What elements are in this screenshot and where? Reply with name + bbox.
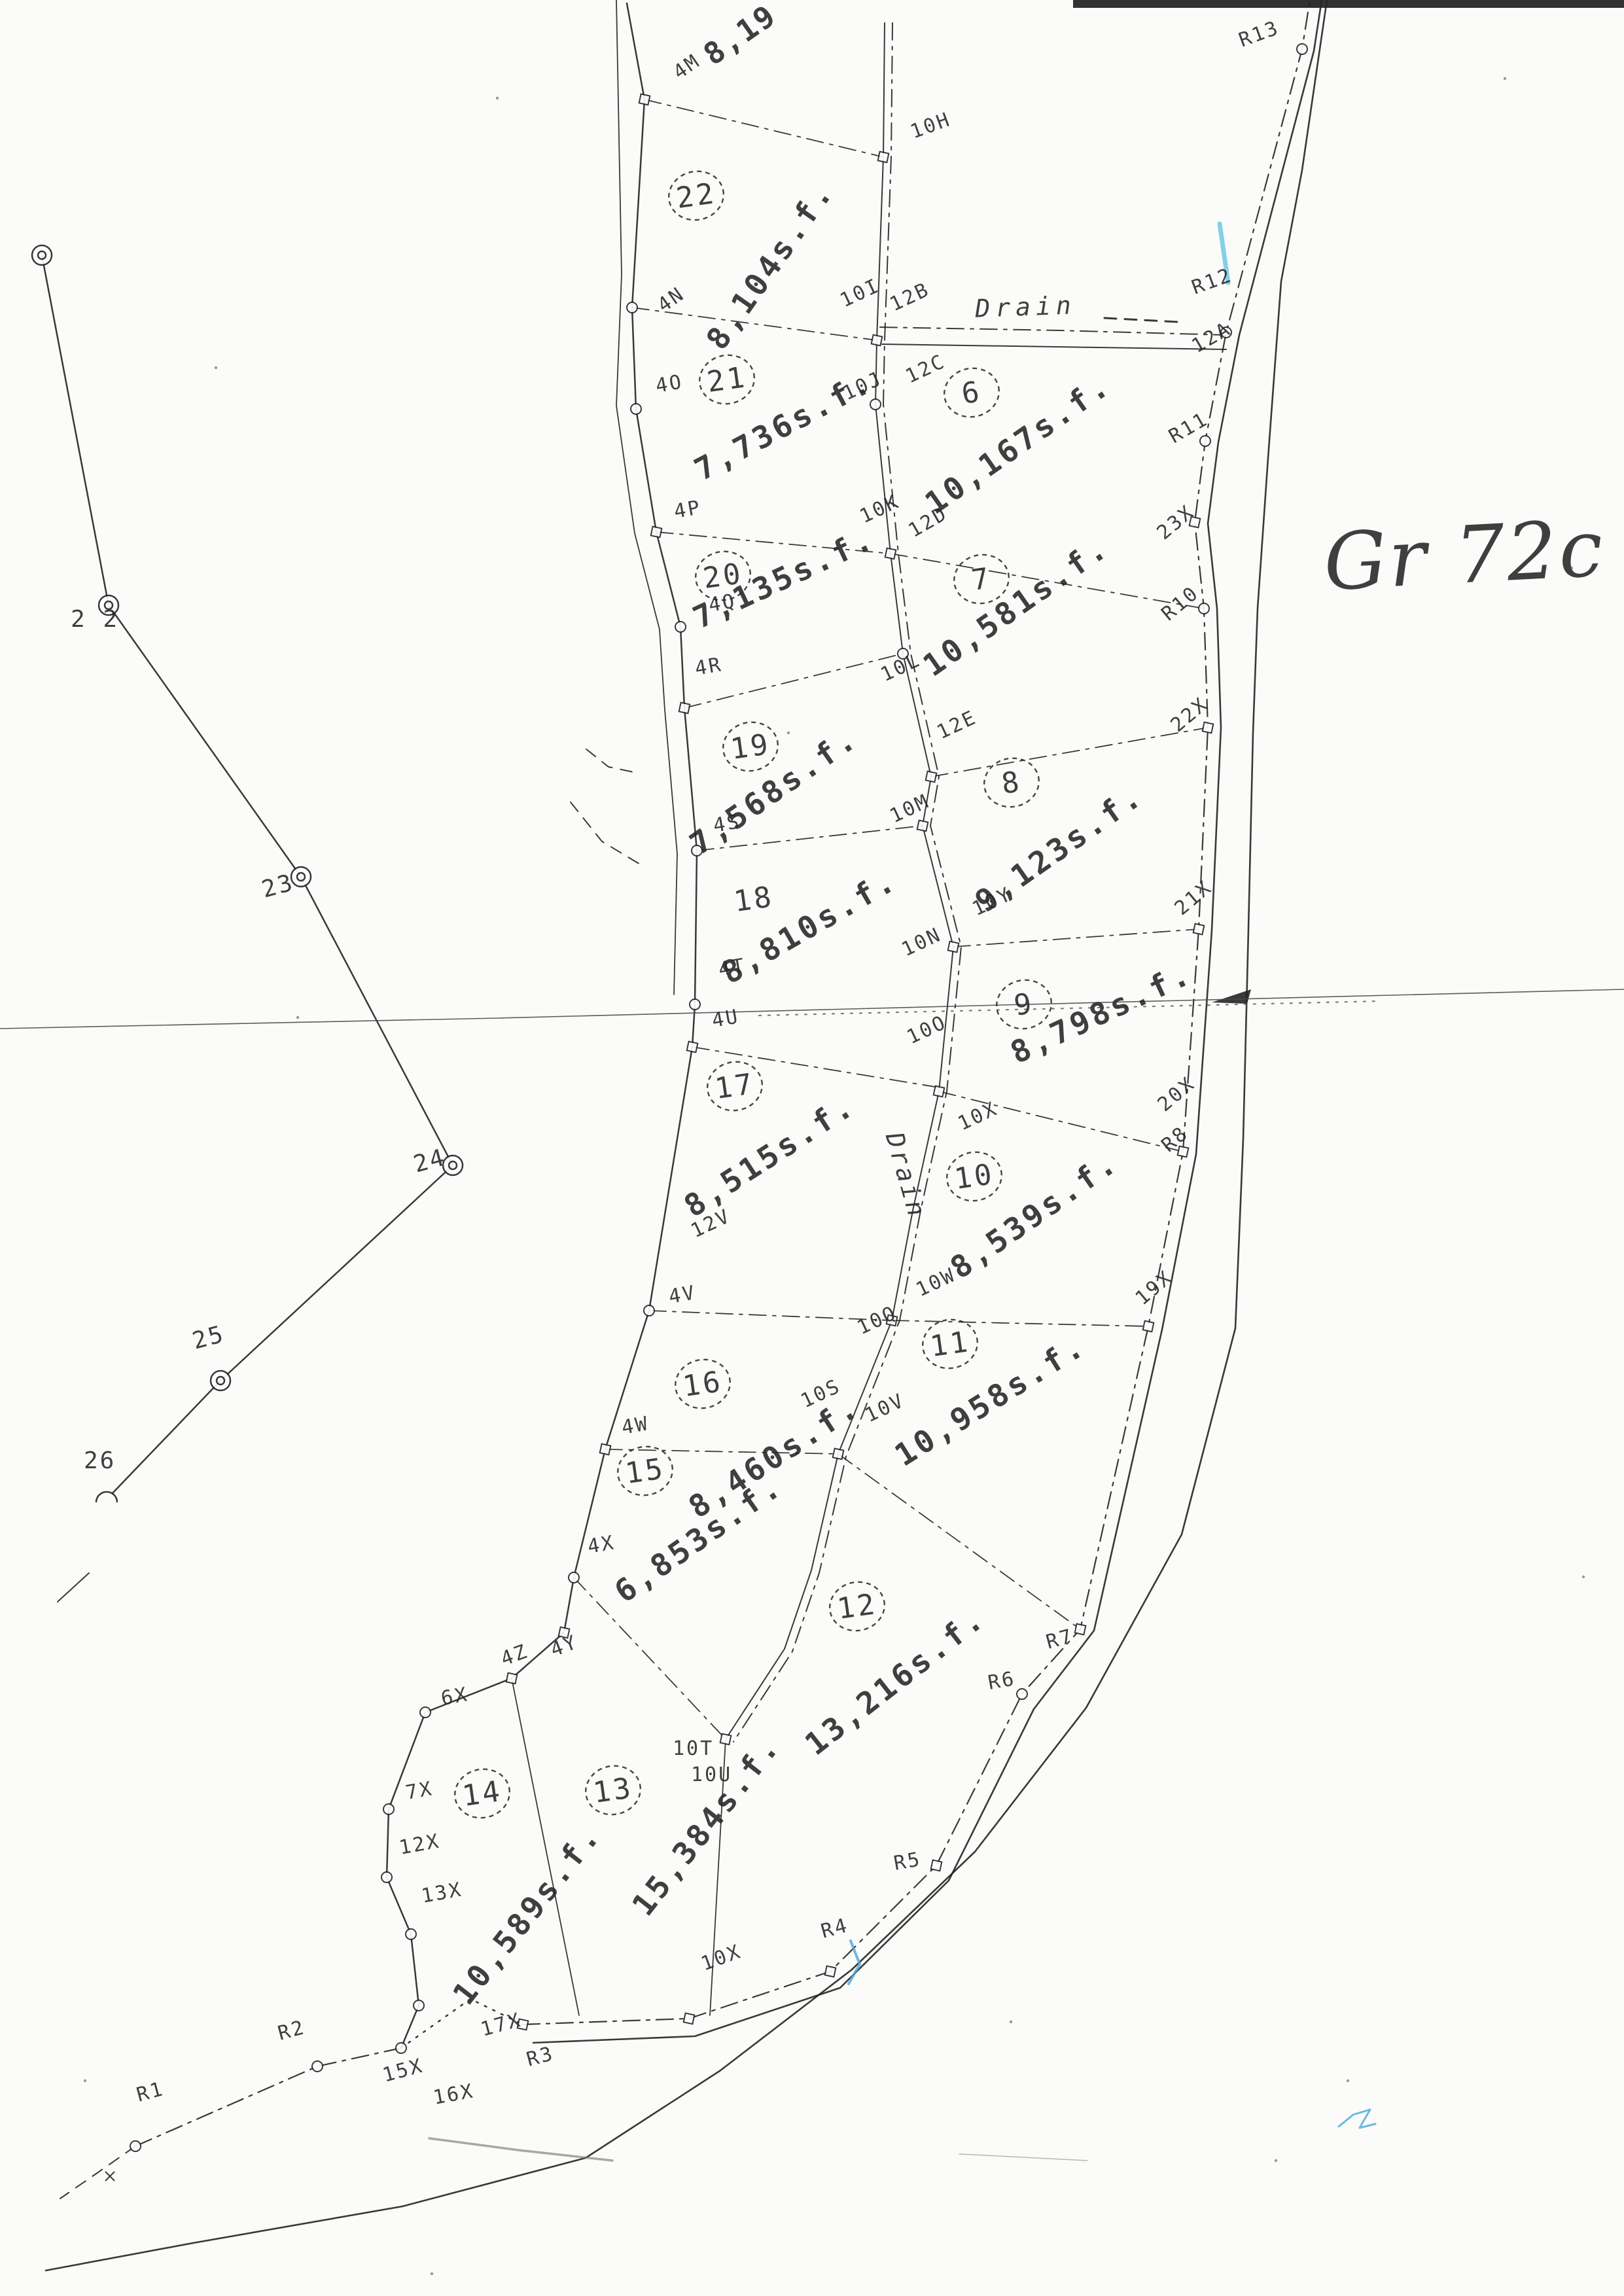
survey-point-marker xyxy=(833,1449,844,1460)
partial-area-top: 8,19 xyxy=(697,0,783,72)
lot-19-number: 19 xyxy=(728,728,772,766)
lot-11-area: 10,958s.f. xyxy=(889,1328,1093,1474)
point-label-10N: 10N xyxy=(898,923,945,961)
lot-19-area: 7,568s.f. xyxy=(684,720,865,862)
point-label-10X: 10X xyxy=(955,1097,1002,1135)
scan-speck xyxy=(1275,2159,1277,2162)
survey-point-marker xyxy=(569,1572,579,1583)
point-label-22: 2 2 xyxy=(71,606,119,633)
scan-speck xyxy=(1347,2079,1349,2082)
survey-point-marker xyxy=(644,1305,654,1316)
survey-point-marker xyxy=(627,302,637,313)
survey-point-marker xyxy=(506,1673,518,1684)
strip-left-boundary xyxy=(387,3,697,2048)
survey-point-marker xyxy=(1017,1689,1027,1699)
lot-14-area: 10,589s.f. xyxy=(446,1818,609,2011)
point-label-10V: 10V xyxy=(862,1389,909,1427)
survey-point-marker xyxy=(926,771,937,783)
divider-7-8 xyxy=(931,728,1208,777)
scan-speck xyxy=(1570,567,1573,569)
scan-speck xyxy=(431,2272,433,2275)
point-label-4W: 4W xyxy=(620,1412,651,1439)
survey-point-marker xyxy=(639,94,650,105)
traverse-station-marker xyxy=(291,867,311,887)
lot-8-area: 9,123s.f. xyxy=(969,778,1150,920)
drain-label-vertical: Drain xyxy=(880,1129,932,1222)
lot-13-number: 13 xyxy=(591,1771,635,1810)
boundary-16x-r1 xyxy=(135,2048,401,2146)
point-label-16X: 16X xyxy=(431,2079,476,2109)
survey-point-marker xyxy=(414,2000,424,2011)
point-label-10I: 10I xyxy=(837,274,884,312)
point-label-4M: 4M xyxy=(669,50,705,84)
survey-point-marker xyxy=(878,152,889,163)
lot-14-number: 14 xyxy=(460,1775,504,1813)
point-label-4N: 4N xyxy=(654,283,690,317)
x-tick-marker xyxy=(105,2172,115,2181)
lot-22-number: 22 xyxy=(674,177,718,215)
point-label-R12: R12 xyxy=(1189,264,1235,300)
lot-8-number: 8 xyxy=(999,765,1023,801)
strip-left-outer xyxy=(616,0,677,995)
point-label-10X: 10X xyxy=(698,1940,745,1976)
lot-12-number: 12 xyxy=(835,1587,879,1626)
smudge-bottom xyxy=(429,2138,612,2161)
point-label-23: 23 xyxy=(259,869,297,903)
survey-point-marker xyxy=(396,2043,406,2053)
point-label-4Y: 4Y xyxy=(548,1631,582,1661)
scan-speck xyxy=(215,366,217,369)
survey-point-marker xyxy=(870,399,881,410)
scan-edge-bar xyxy=(1073,0,1624,8)
lot-12-area: 13,216s.f. xyxy=(798,1600,992,1763)
scan-speck xyxy=(84,2079,86,2082)
lot-22-area: 8,104s.f. xyxy=(699,175,841,357)
drain-east-a xyxy=(880,327,1226,335)
scan-speck xyxy=(296,1016,299,1019)
scan-speck xyxy=(1504,77,1506,80)
fold-line xyxy=(0,989,1624,1029)
survey-point-marker xyxy=(600,1444,611,1455)
survey-point-marker xyxy=(130,2141,141,2151)
traverse-line xyxy=(42,255,453,1493)
scan-speck xyxy=(496,97,499,99)
point-label-R3: R3 xyxy=(524,2042,557,2072)
survey-point-marker xyxy=(675,622,686,632)
survey-point-marker xyxy=(679,703,690,714)
scanned-plat-page: Scanned subdivision plat map 2 223242526… xyxy=(0,0,1624,2296)
point-label-7X: 7X xyxy=(404,1777,435,1805)
lot-17-area: 8,515s.f. xyxy=(678,1087,862,1224)
scan-speck xyxy=(1582,1576,1585,1578)
drain-east-squiggle xyxy=(1104,318,1178,322)
survey-point-marker xyxy=(651,527,662,538)
point-label-10H: 10H xyxy=(908,108,954,144)
drain-label-horizontal: Drain xyxy=(974,291,1077,323)
survey-point-marker xyxy=(1143,1321,1154,1332)
survey-point-marker xyxy=(872,335,883,346)
divider-22-top xyxy=(644,99,883,157)
survey-point-marker xyxy=(1075,1624,1086,1635)
lot-21-number: 21 xyxy=(705,361,749,399)
scan-speck xyxy=(787,732,790,734)
hook-dash-b xyxy=(571,802,641,865)
faint-bottom-line xyxy=(959,2154,1087,2161)
survey-point-marker xyxy=(1203,722,1214,733)
point-label-12X: 12X xyxy=(397,1829,442,1859)
point-label-13X: 13X xyxy=(419,1878,464,1907)
point-label-12A: 12A xyxy=(1188,317,1235,358)
survey-point-marker xyxy=(406,1929,416,1939)
divider-10-11 xyxy=(892,1320,1148,1326)
survey-point-marker xyxy=(917,821,928,832)
survey-point-marker xyxy=(690,999,700,1010)
point-label-24: 24 xyxy=(411,1144,449,1178)
survey-point-marker xyxy=(631,404,641,414)
handwritten-note: Gr 72c xyxy=(1322,503,1607,609)
point-label-R1: R1 xyxy=(134,2077,167,2107)
survey-point-marker xyxy=(1200,436,1210,446)
lot-15-number: 15 xyxy=(623,1452,667,1491)
point-label-19X: 19X xyxy=(1131,1266,1178,1310)
lot-18-area: 8,810s.f. xyxy=(716,862,904,991)
point-label-10Q: 10Q xyxy=(854,1301,901,1339)
point-label-R6: R6 xyxy=(986,1667,1017,1695)
survey-point-marker xyxy=(684,2013,695,2024)
hook-dash-a xyxy=(586,749,633,772)
point-label-12B: 12B xyxy=(887,278,934,316)
drain-east-b xyxy=(882,344,1226,349)
survey-point-marker xyxy=(948,942,959,953)
lot-16-number: 16 xyxy=(680,1365,724,1404)
point-label-10T: 10T xyxy=(673,1737,714,1760)
survey-point-marker xyxy=(885,548,896,559)
point-label-R13: R13 xyxy=(1236,16,1282,52)
outer-boundary xyxy=(46,0,1327,2270)
lot-7-number: 7 xyxy=(969,561,993,597)
point-label-R2: R2 xyxy=(275,2016,308,2045)
blue-scribble-bottom xyxy=(1339,2110,1375,2128)
point-label-4P: 4P xyxy=(672,496,703,523)
traverse-station-marker xyxy=(211,1371,230,1390)
lot-6-number: 6 xyxy=(959,375,983,411)
point-label-R4: R4 xyxy=(819,1914,851,1943)
survey-point-marker xyxy=(1199,603,1209,614)
point-label-4V: 4V xyxy=(667,1281,698,1309)
survey-point-marker xyxy=(687,1042,698,1053)
point-label-4X: 4X xyxy=(586,1531,617,1559)
point-label-4R: 4R xyxy=(693,653,724,680)
point-label-17X: 17X xyxy=(478,2009,524,2041)
point-label-4U: 4U xyxy=(710,1005,741,1033)
fold-wedge xyxy=(1212,989,1251,1004)
survey-point-marker xyxy=(825,1966,836,1977)
point-label-15X: 15X xyxy=(380,2055,426,2087)
point-label-R5: R5 xyxy=(892,1848,923,1875)
r1-dashes xyxy=(60,2146,135,2199)
survey-point-marker xyxy=(381,1872,392,1882)
traverse-station-marker xyxy=(32,245,52,265)
traverse-tail xyxy=(58,1573,89,1602)
survey-point-marker xyxy=(931,1860,942,1871)
divider-15-13 xyxy=(574,1578,726,1739)
divider-8-9 xyxy=(953,929,1199,947)
survey-point-marker xyxy=(1193,924,1205,935)
lot-11-number: 11 xyxy=(928,1325,972,1364)
lot-10-number: 10 xyxy=(952,1157,996,1196)
survey-point-marker xyxy=(720,1734,732,1745)
lot-7-area: 10,581s.f. xyxy=(917,529,1116,684)
point-label-23X: 23X xyxy=(1153,501,1199,544)
scan-speck xyxy=(1010,2021,1012,2023)
survey-point-marker xyxy=(420,1707,431,1718)
point-label-12E: 12E xyxy=(934,706,981,744)
survey-point-marker xyxy=(1297,44,1307,54)
traverse-arc-marker xyxy=(96,1492,117,1502)
lot-6-area: 10,167s.f. xyxy=(919,367,1118,521)
point-label-R7: R7 xyxy=(1044,1625,1076,1654)
lot-17-number: 17 xyxy=(713,1067,756,1106)
point-label-20X: 20X xyxy=(1154,1072,1200,1116)
point-label-R10: R10 xyxy=(1157,582,1204,626)
point-label-4O: 4O xyxy=(654,370,685,398)
point-label-21X: 21X xyxy=(1171,876,1217,920)
point-label-12C: 12C xyxy=(902,350,949,388)
lot-18-number: 18 xyxy=(732,880,775,919)
lot-9-number: 9 xyxy=(1012,987,1036,1023)
survey-point-marker xyxy=(312,2061,323,2072)
point-label-25: 25 xyxy=(190,1320,228,1354)
point-label-26: 26 xyxy=(84,1447,116,1474)
plat-map: 2 2232425264M4N4O4P4Q4R4S4T4U12V4V4W4X4Y… xyxy=(0,0,1624,2296)
survey-point-marker xyxy=(934,1086,945,1097)
point-label-6X: 6X xyxy=(439,1683,470,1710)
survey-point-marker xyxy=(383,1804,394,1814)
